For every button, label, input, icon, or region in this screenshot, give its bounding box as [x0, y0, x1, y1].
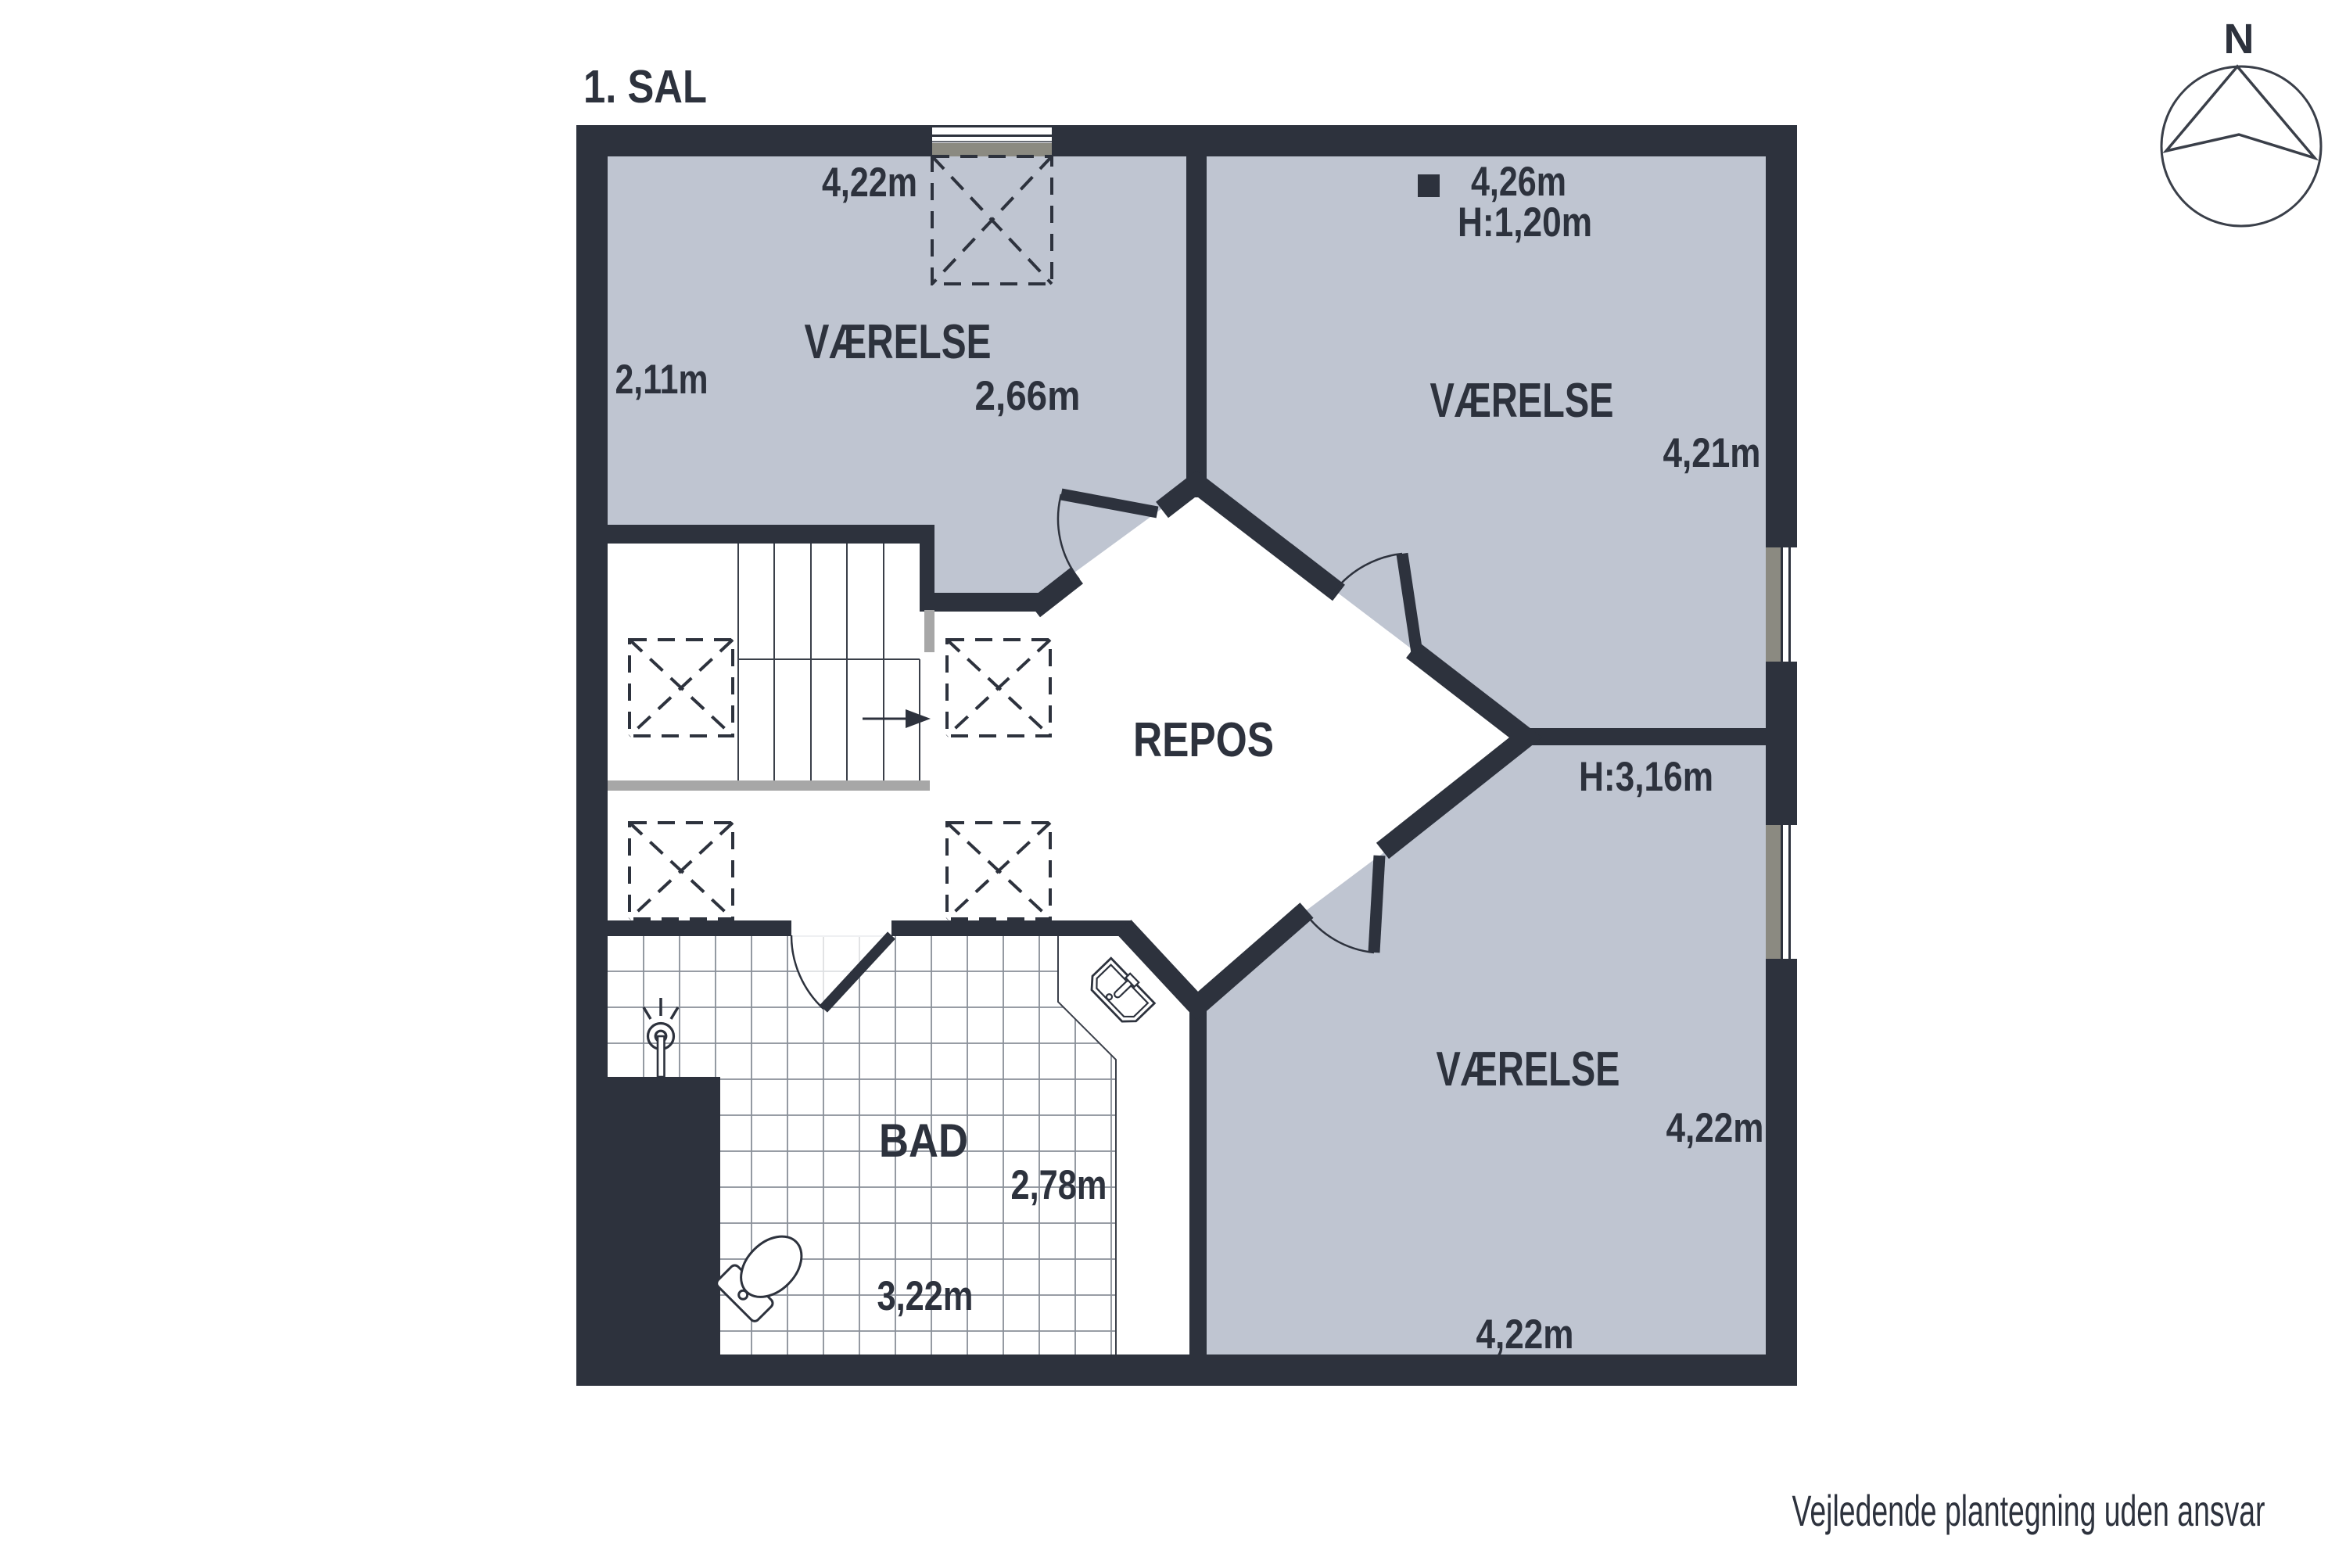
- svg-text:BAD: BAD: [879, 1114, 968, 1167]
- svg-text:4,22m: 4,22m: [822, 160, 917, 206]
- svg-text:H:3,16m: H:3,16m: [1579, 754, 1713, 800]
- svg-text:VÆRELSE: VÆRELSE: [1437, 1042, 1620, 1096]
- svg-text:4,22m: 4,22m: [1666, 1105, 1764, 1151]
- svg-text:VÆRELSE: VÆRELSE: [1430, 374, 1614, 428]
- svg-text:4,21m: 4,21m: [1663, 430, 1761, 476]
- svg-text:H:1,20m: H:1,20m: [1458, 199, 1592, 246]
- svg-text:2,11m: 2,11m: [615, 357, 708, 403]
- svg-text:REPOS: REPOS: [1133, 713, 1274, 767]
- svg-text:2,66m: 2,66m: [975, 373, 1081, 419]
- svg-text:N: N: [2224, 16, 2255, 63]
- svg-text:3,22m: 3,22m: [877, 1273, 974, 1319]
- svg-text:VÆRELSE: VÆRELSE: [805, 315, 992, 369]
- svg-text:2,78m: 2,78m: [1011, 1162, 1107, 1208]
- svg-text:4,26m: 4,26m: [1471, 159, 1566, 205]
- svg-text:4,22m: 4,22m: [1476, 1311, 1574, 1358]
- svg-text:Vejledende plantegning uden an: Vejledende plantegning uden ansvar: [1792, 1486, 2265, 1535]
- svg-text:1. SAL: 1. SAL: [583, 61, 707, 113]
